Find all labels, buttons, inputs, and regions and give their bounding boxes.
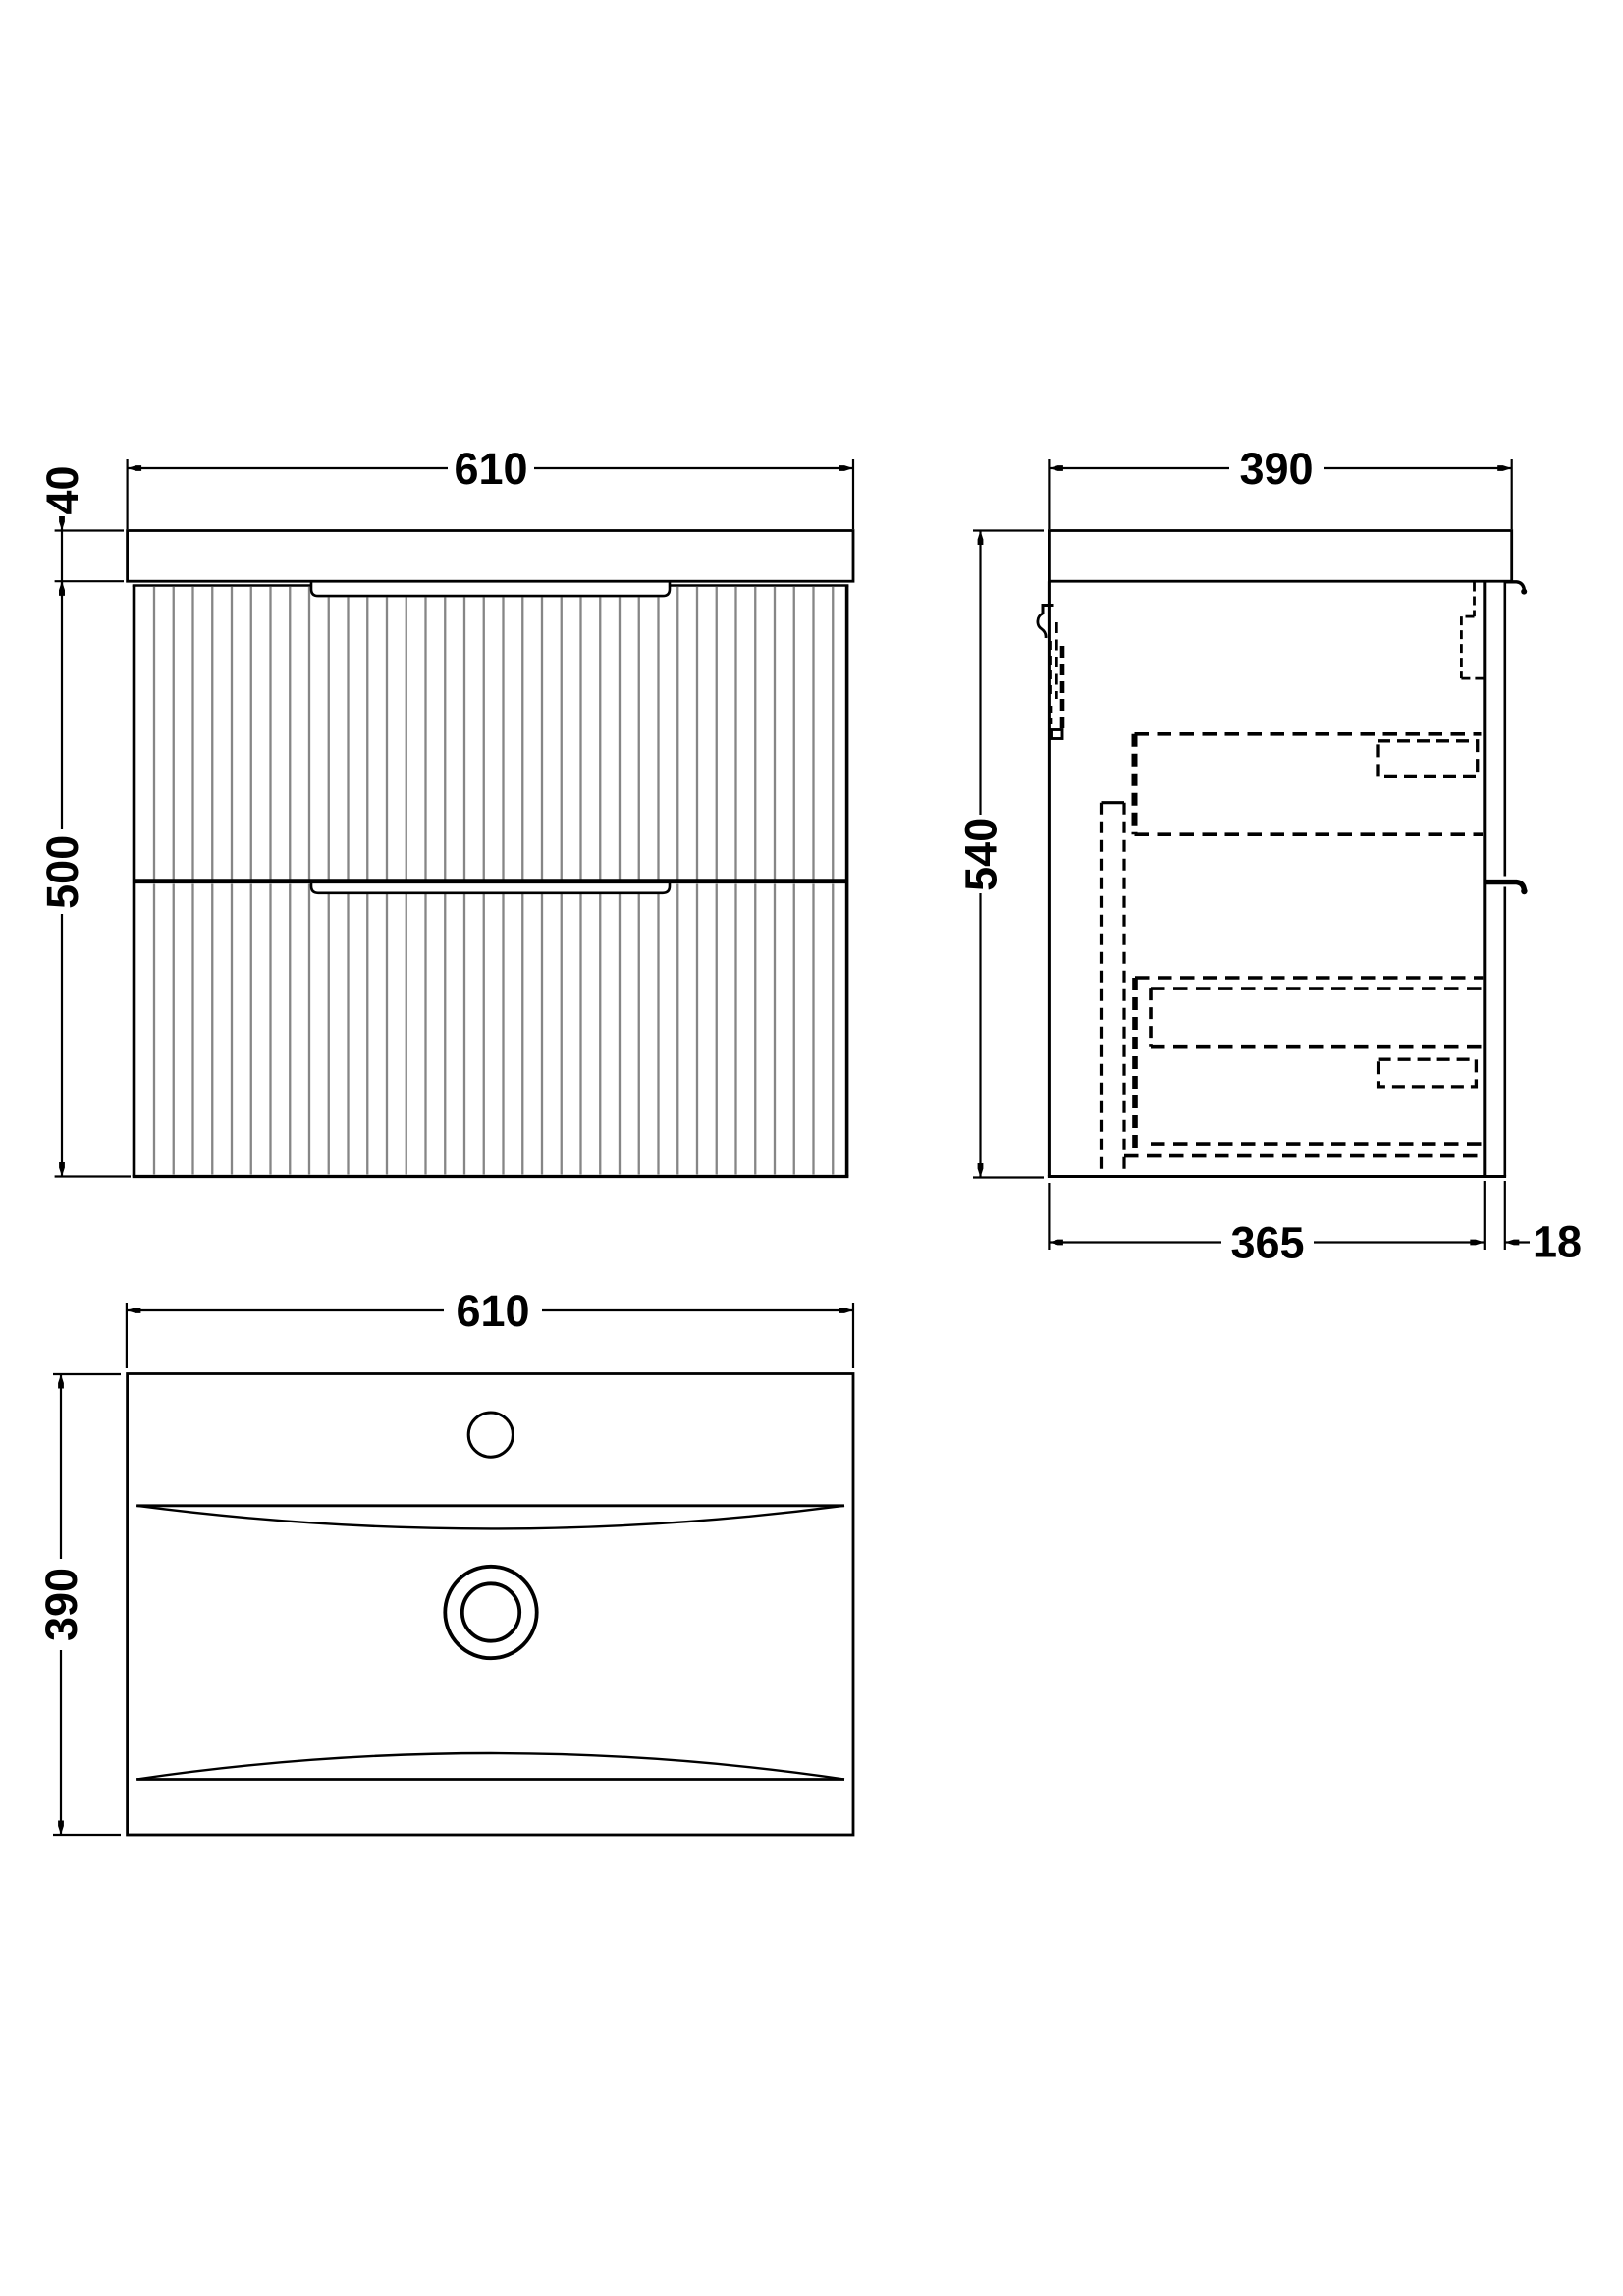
svg-text:365: 365 [1230, 1218, 1304, 1268]
svg-text:40: 40 [37, 465, 87, 514]
svg-text:390: 390 [1239, 444, 1313, 494]
svg-text:500: 500 [37, 835, 87, 909]
svg-text:18: 18 [1533, 1217, 1582, 1267]
svg-text:540: 540 [956, 818, 1006, 891]
svg-text:390: 390 [36, 1568, 86, 1641]
svg-text:610: 610 [456, 1286, 529, 1336]
svg-text:610: 610 [454, 444, 527, 494]
